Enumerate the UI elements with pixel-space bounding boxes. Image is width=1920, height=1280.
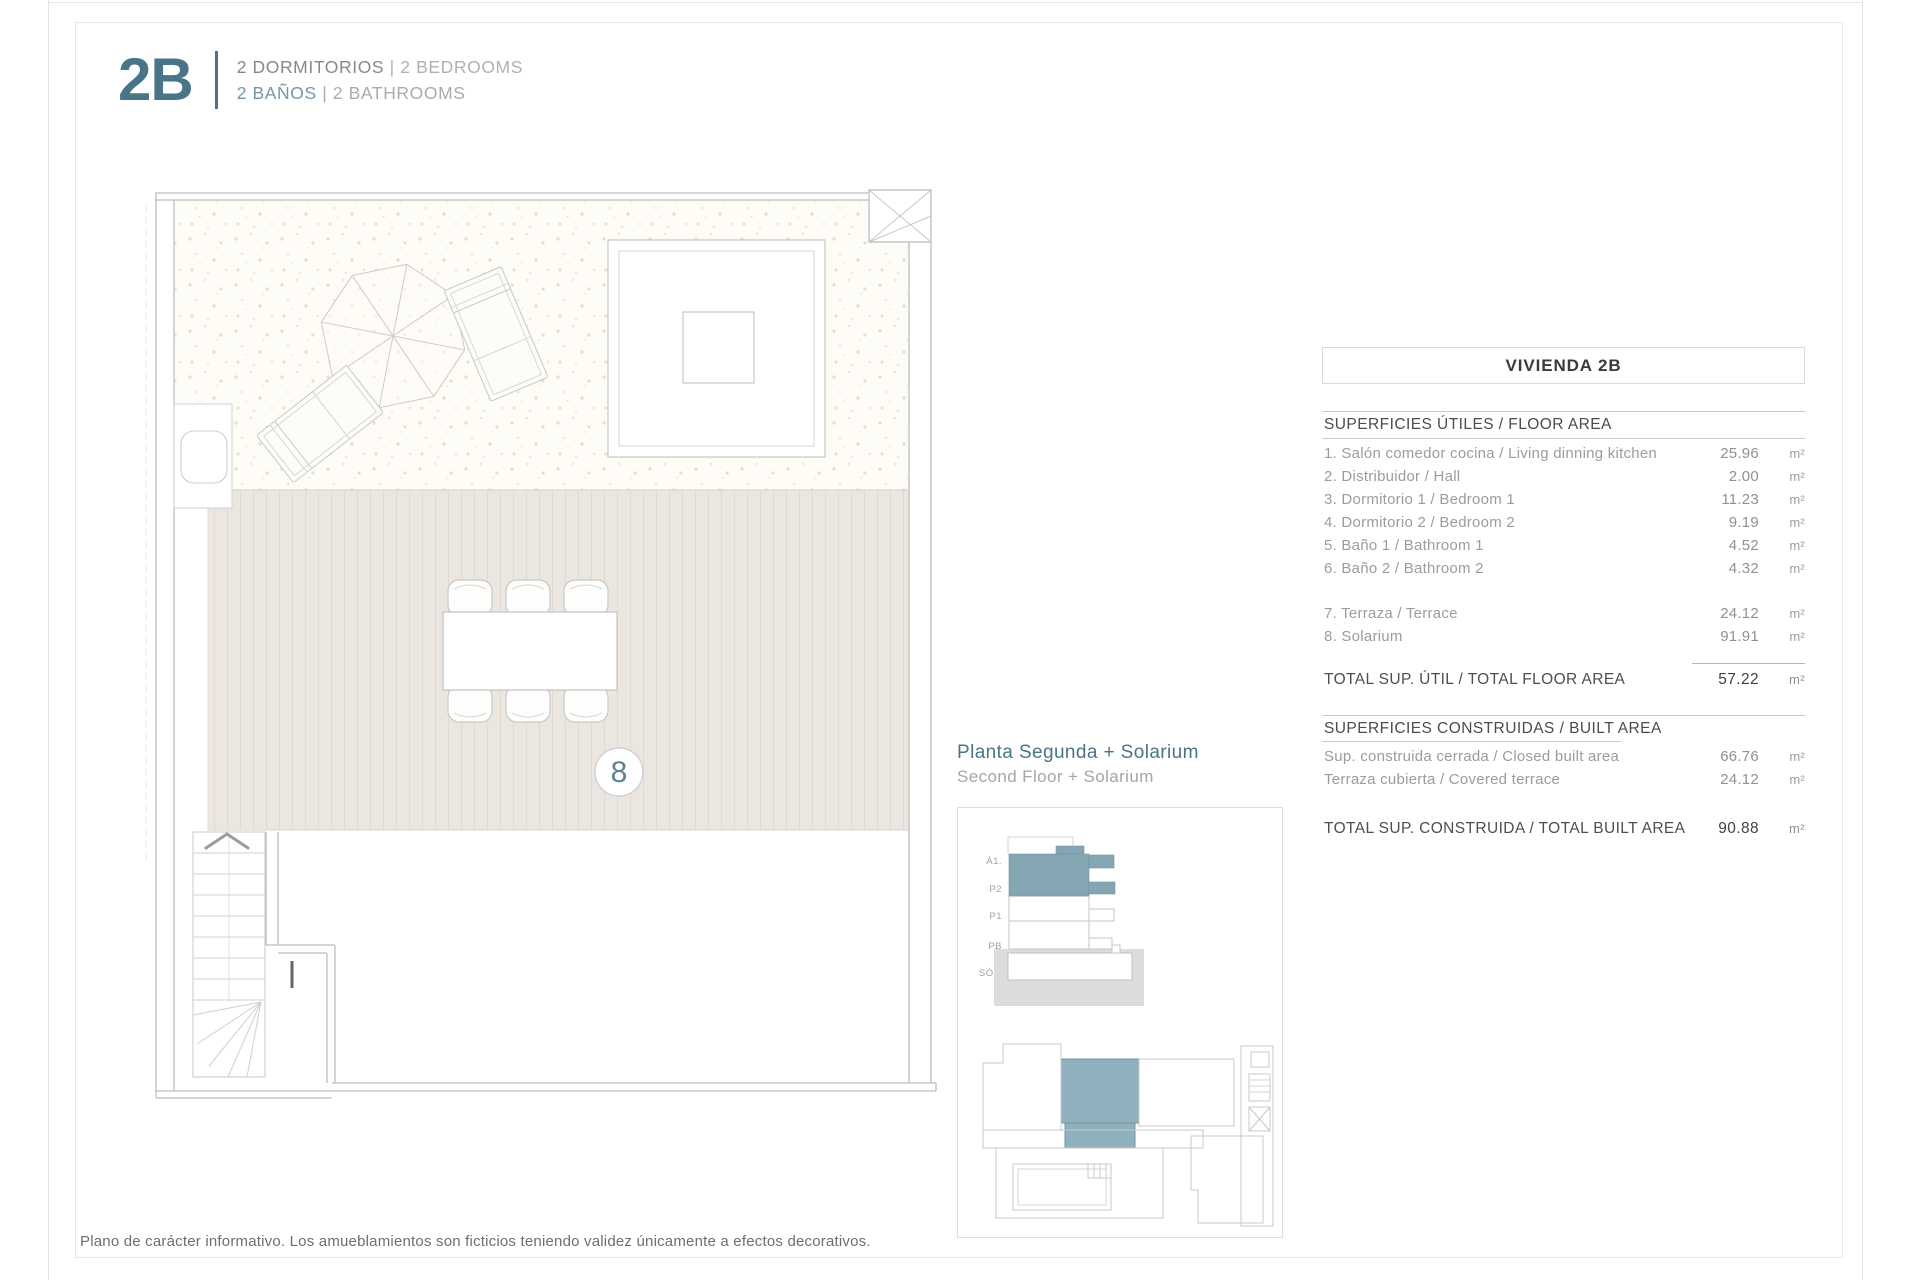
table-row: 6. Baño 2 / Bathroom 2 4.32 m² <box>1322 560 1805 583</box>
row-unit: m² <box>1759 749 1805 764</box>
inset-title-en: Second Floor + Solarium <box>957 767 1199 787</box>
section-label-p2: P2 <box>989 884 1002 895</box>
sheet-edge-top <box>48 2 1862 3</box>
roof-shaft-symbol <box>869 190 931 242</box>
keyplan-unit-highlight <box>1061 1059 1139 1123</box>
row-value: 24.12 <box>1697 605 1759 622</box>
bedrooms-en: 2 BEDROOMS <box>400 57 523 77</box>
row-label: 7. Terraza / Terrace <box>1324 605 1697 622</box>
staircase <box>193 832 265 1077</box>
separator: | <box>390 57 395 77</box>
header-divider <box>215 51 218 109</box>
row-value: 25.96 <box>1697 445 1759 462</box>
row-unit: m² <box>1759 515 1805 530</box>
total-unit: m² <box>1759 821 1805 836</box>
floor-plan-drawing: 8 <box>140 180 950 1110</box>
row-value: 66.76 <box>1697 748 1759 765</box>
inset-title-es: Planta Segunda + Solarium <box>957 742 1199 764</box>
keyplan-pool <box>1013 1164 1111 1210</box>
room-number-badge: 8 <box>595 748 643 796</box>
room-number-label: 8 <box>611 756 628 789</box>
total-unit: m² <box>1759 672 1805 687</box>
floor-area-header: SUPERFICIES ÚTILES / FLOOR AREA <box>1322 411 1805 439</box>
row-value: 4.32 <box>1697 560 1759 577</box>
section-label-a1: Á1. <box>986 856 1002 867</box>
skylight <box>608 240 825 457</box>
table-row: 3. Dormitorio 1 / Bedroom 1 11.23 m² <box>1322 491 1805 514</box>
inset-title: Planta Segunda + Solarium Second Floor +… <box>957 742 1199 787</box>
row-unit: m² <box>1759 469 1805 484</box>
bathrooms-es: 2 BAÑOS <box>237 83 317 103</box>
row-label: 3. Dormitorio 1 / Bedroom 1 <box>1324 491 1697 508</box>
sheet-edge-left <box>48 0 49 1280</box>
unit-code: 2B <box>118 50 193 110</box>
table-row: 5. Baño 1 / Bathroom 1 4.52 m² <box>1322 537 1805 560</box>
table-row: 1. Salón comedor cocina / Living dinning… <box>1322 445 1805 468</box>
planter-bay <box>174 404 232 508</box>
row-value: 2.00 <box>1697 468 1759 485</box>
table <box>443 612 617 690</box>
table-row: 8. Solarium 91.91 m² <box>1322 628 1805 651</box>
built-area-rows: Sup. construida cerrada / Closed built a… <box>1322 742 1805 794</box>
built-area-header: SUPERFICIES CONSTRUIDAS / BUILT AREA <box>1322 715 1805 742</box>
area-table: VIVIENDA 2B SUPERFICIES ÚTILES / FLOOR A… <box>1322 347 1805 838</box>
row-value: 91.91 <box>1697 628 1759 645</box>
row-value: 24.12 <box>1697 771 1759 788</box>
row-label: 4. Dormitorio 2 / Bedroom 2 <box>1324 514 1697 531</box>
row-label: Sup. construida cerrada / Closed built a… <box>1324 748 1697 765</box>
section-label-p1: P1 <box>989 911 1002 922</box>
bathrooms-en: 2 BATHROOMS <box>333 83 466 103</box>
row-unit: m² <box>1759 606 1805 621</box>
row-unit: m² <box>1759 538 1805 553</box>
section-and-keyplan: Á1. P2 P1 PB SÓT. <box>958 808 1282 1237</box>
floor-area-total: TOTAL SUP. ÚTIL / TOTAL FLOOR AREA 57.22… <box>1322 671 1805 689</box>
row-label: 1. Salón comedor cocina / Living dinning… <box>1324 445 1697 462</box>
table-row: Terraza cubierta / Covered terrace 24.12… <box>1322 771 1805 794</box>
table-row: 7. Terraza / Terrace 24.12 m² <box>1322 605 1805 628</box>
row-unit: m² <box>1759 772 1805 787</box>
section-highlight <box>1009 846 1115 896</box>
key-plan <box>983 1044 1273 1226</box>
floor-plan: 8 <box>140 180 950 1110</box>
row-unit: m² <box>1759 629 1805 644</box>
row-unit: m² <box>1759 492 1805 507</box>
bedrooms-line: 2 DORMITORIOS | 2 BEDROOMS <box>237 57 523 78</box>
row-unit: m² <box>1759 561 1805 576</box>
bathrooms-line: 2 BAÑOS | 2 BATHROOMS <box>237 83 523 104</box>
outdoor-area-rows: 7. Terraza / Terrace 24.12 m² 8. Solariu… <box>1322 605 1805 651</box>
row-label: Terraza cubierta / Covered terrace <box>1324 771 1697 788</box>
table-row: 4. Dormitorio 2 / Bedroom 2 9.19 m² <box>1322 514 1805 537</box>
total-rule <box>1692 663 1805 664</box>
row-value: 11.23 <box>1697 491 1759 508</box>
row-label: 8. Solarium <box>1324 628 1697 645</box>
sheet-edge-right <box>1862 0 1863 1280</box>
table-title: VIVIENDA 2B <box>1322 347 1805 384</box>
total-label: TOTAL SUP. CONSTRUIDA / TOTAL BUILT AREA <box>1324 820 1697 838</box>
separator: | <box>322 83 327 103</box>
row-value: 9.19 <box>1697 514 1759 531</box>
table-row: 2. Distribuidor / Hall 2.00 m² <box>1322 468 1805 491</box>
row-label: 6. Baño 2 / Bathroom 2 <box>1324 560 1697 577</box>
header-lines: 2 DORMITORIOS | 2 BEDROOMS 2 BAÑOS | 2 B… <box>237 57 523 104</box>
building-section: Á1. P2 P1 PB SÓT. <box>979 837 1144 1006</box>
floor-area-rows: 1. Salón comedor cocina / Living dinning… <box>1322 439 1805 583</box>
row-value: 4.52 <box>1697 537 1759 554</box>
disclaimer: Plano de carácter informativo. Los amueb… <box>80 1233 871 1250</box>
inset-box: Á1. P2 P1 PB SÓT. <box>957 807 1283 1238</box>
header: 2B 2 DORMITORIOS | 2 BEDROOMS 2 BAÑOS | … <box>118 50 523 110</box>
total-label: TOTAL SUP. ÚTIL / TOTAL FLOOR AREA <box>1324 671 1697 689</box>
dining-set <box>443 580 617 722</box>
row-label: 5. Baño 1 / Bathroom 1 <box>1324 537 1697 554</box>
built-area-total: TOTAL SUP. CONSTRUIDA / TOTAL BUILT AREA… <box>1322 820 1805 838</box>
total-value: 57.22 <box>1697 671 1759 689</box>
total-value: 90.88 <box>1697 820 1759 838</box>
row-label: 2. Distribuidor / Hall <box>1324 468 1697 485</box>
table-row: Sup. construida cerrada / Closed built a… <box>1322 748 1805 771</box>
bedrooms-es: 2 DORMITORIOS <box>237 57 385 77</box>
row-unit: m² <box>1759 446 1805 461</box>
